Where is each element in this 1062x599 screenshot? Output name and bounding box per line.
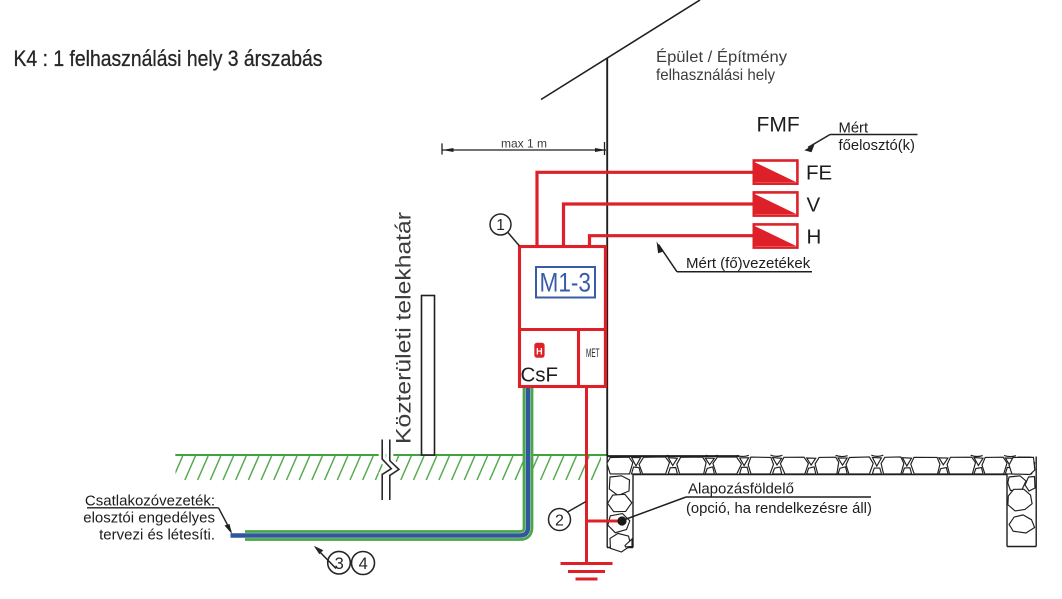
svg-text:elosztói engedélyes: elosztói engedélyes <box>83 510 215 527</box>
svg-text:tervezi és létesíti.: tervezi és létesíti. <box>99 526 215 543</box>
svg-text:2: 2 <box>555 513 564 530</box>
svg-text:MET: MET <box>586 348 600 360</box>
svg-text:4: 4 <box>359 555 368 573</box>
svg-text:M1-3: M1-3 <box>540 268 592 298</box>
svg-text:(opció, ha rendelkezésre áll): (opció, ha rendelkezésre áll) <box>686 501 872 517</box>
svg-text:1: 1 <box>496 217 505 234</box>
svg-text:Épület / Építmény: Épület / Építmény <box>656 47 787 66</box>
svg-text:V: V <box>807 194 821 217</box>
svg-text:főelosztó(k): főelosztó(k) <box>839 138 916 154</box>
svg-text:FMF: FMF <box>757 114 800 137</box>
svg-text:Közterületi telekhatár: Közterületi telekhatár <box>393 212 416 444</box>
svg-text:max 1 m: max 1 m <box>501 136 547 150</box>
svg-text:Mért (fő)vezetékek: Mért (fő)vezetékek <box>686 255 811 272</box>
svg-text:FE: FE <box>806 162 832 185</box>
svg-text:CsF: CsF <box>521 364 559 387</box>
svg-text:K4 : 1 felhasználási hely 3 ár: K4 : 1 felhasználási hely 3 árszabás <box>14 46 323 71</box>
svg-text:Csatlakozóvezeték:: Csatlakozóvezeték: <box>85 492 215 509</box>
svg-text:H: H <box>807 226 822 249</box>
svg-text:Mért: Mért <box>839 121 869 137</box>
svg-text:Alapozásföldelő: Alapozásföldelő <box>688 481 794 498</box>
svg-text:felhasználási hely: felhasználási hely <box>656 67 775 84</box>
svg-text:3: 3 <box>335 555 344 573</box>
svg-text:H: H <box>536 347 543 357</box>
